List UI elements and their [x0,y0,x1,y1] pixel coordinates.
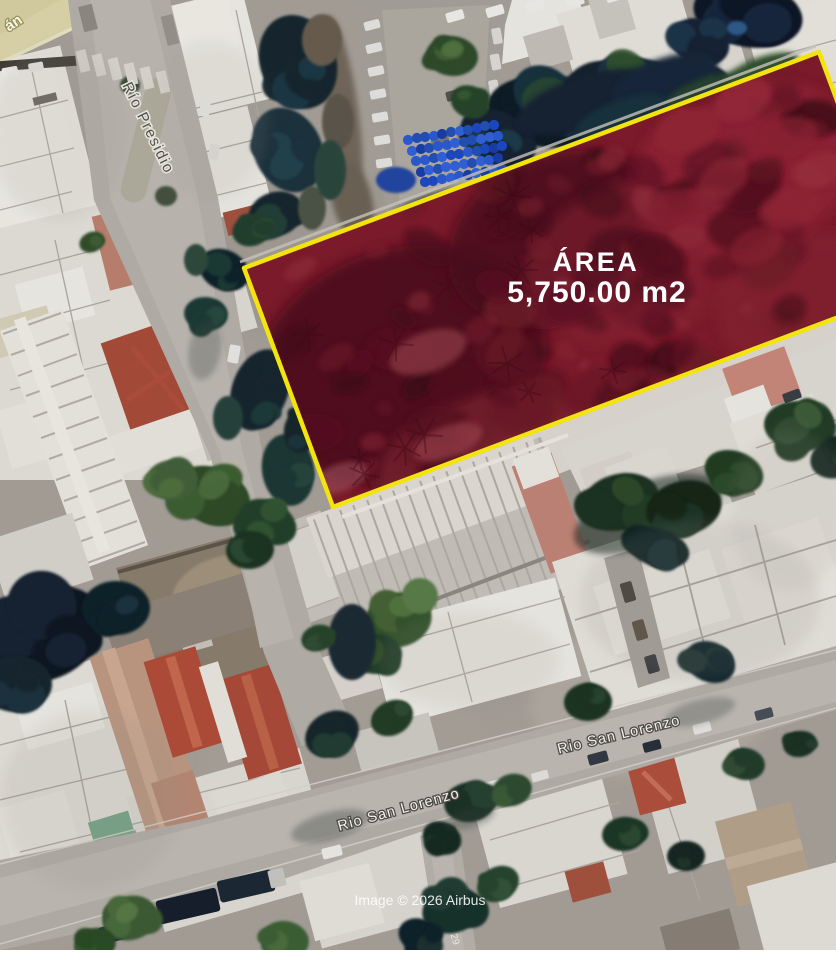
svg-text:Image © 2026 Airbus: Image © 2026 Airbus [355,892,486,908]
svg-text:ÁREA: ÁREA [553,246,640,277]
svg-text:5,750.00 m2: 5,750.00 m2 [507,276,686,309]
